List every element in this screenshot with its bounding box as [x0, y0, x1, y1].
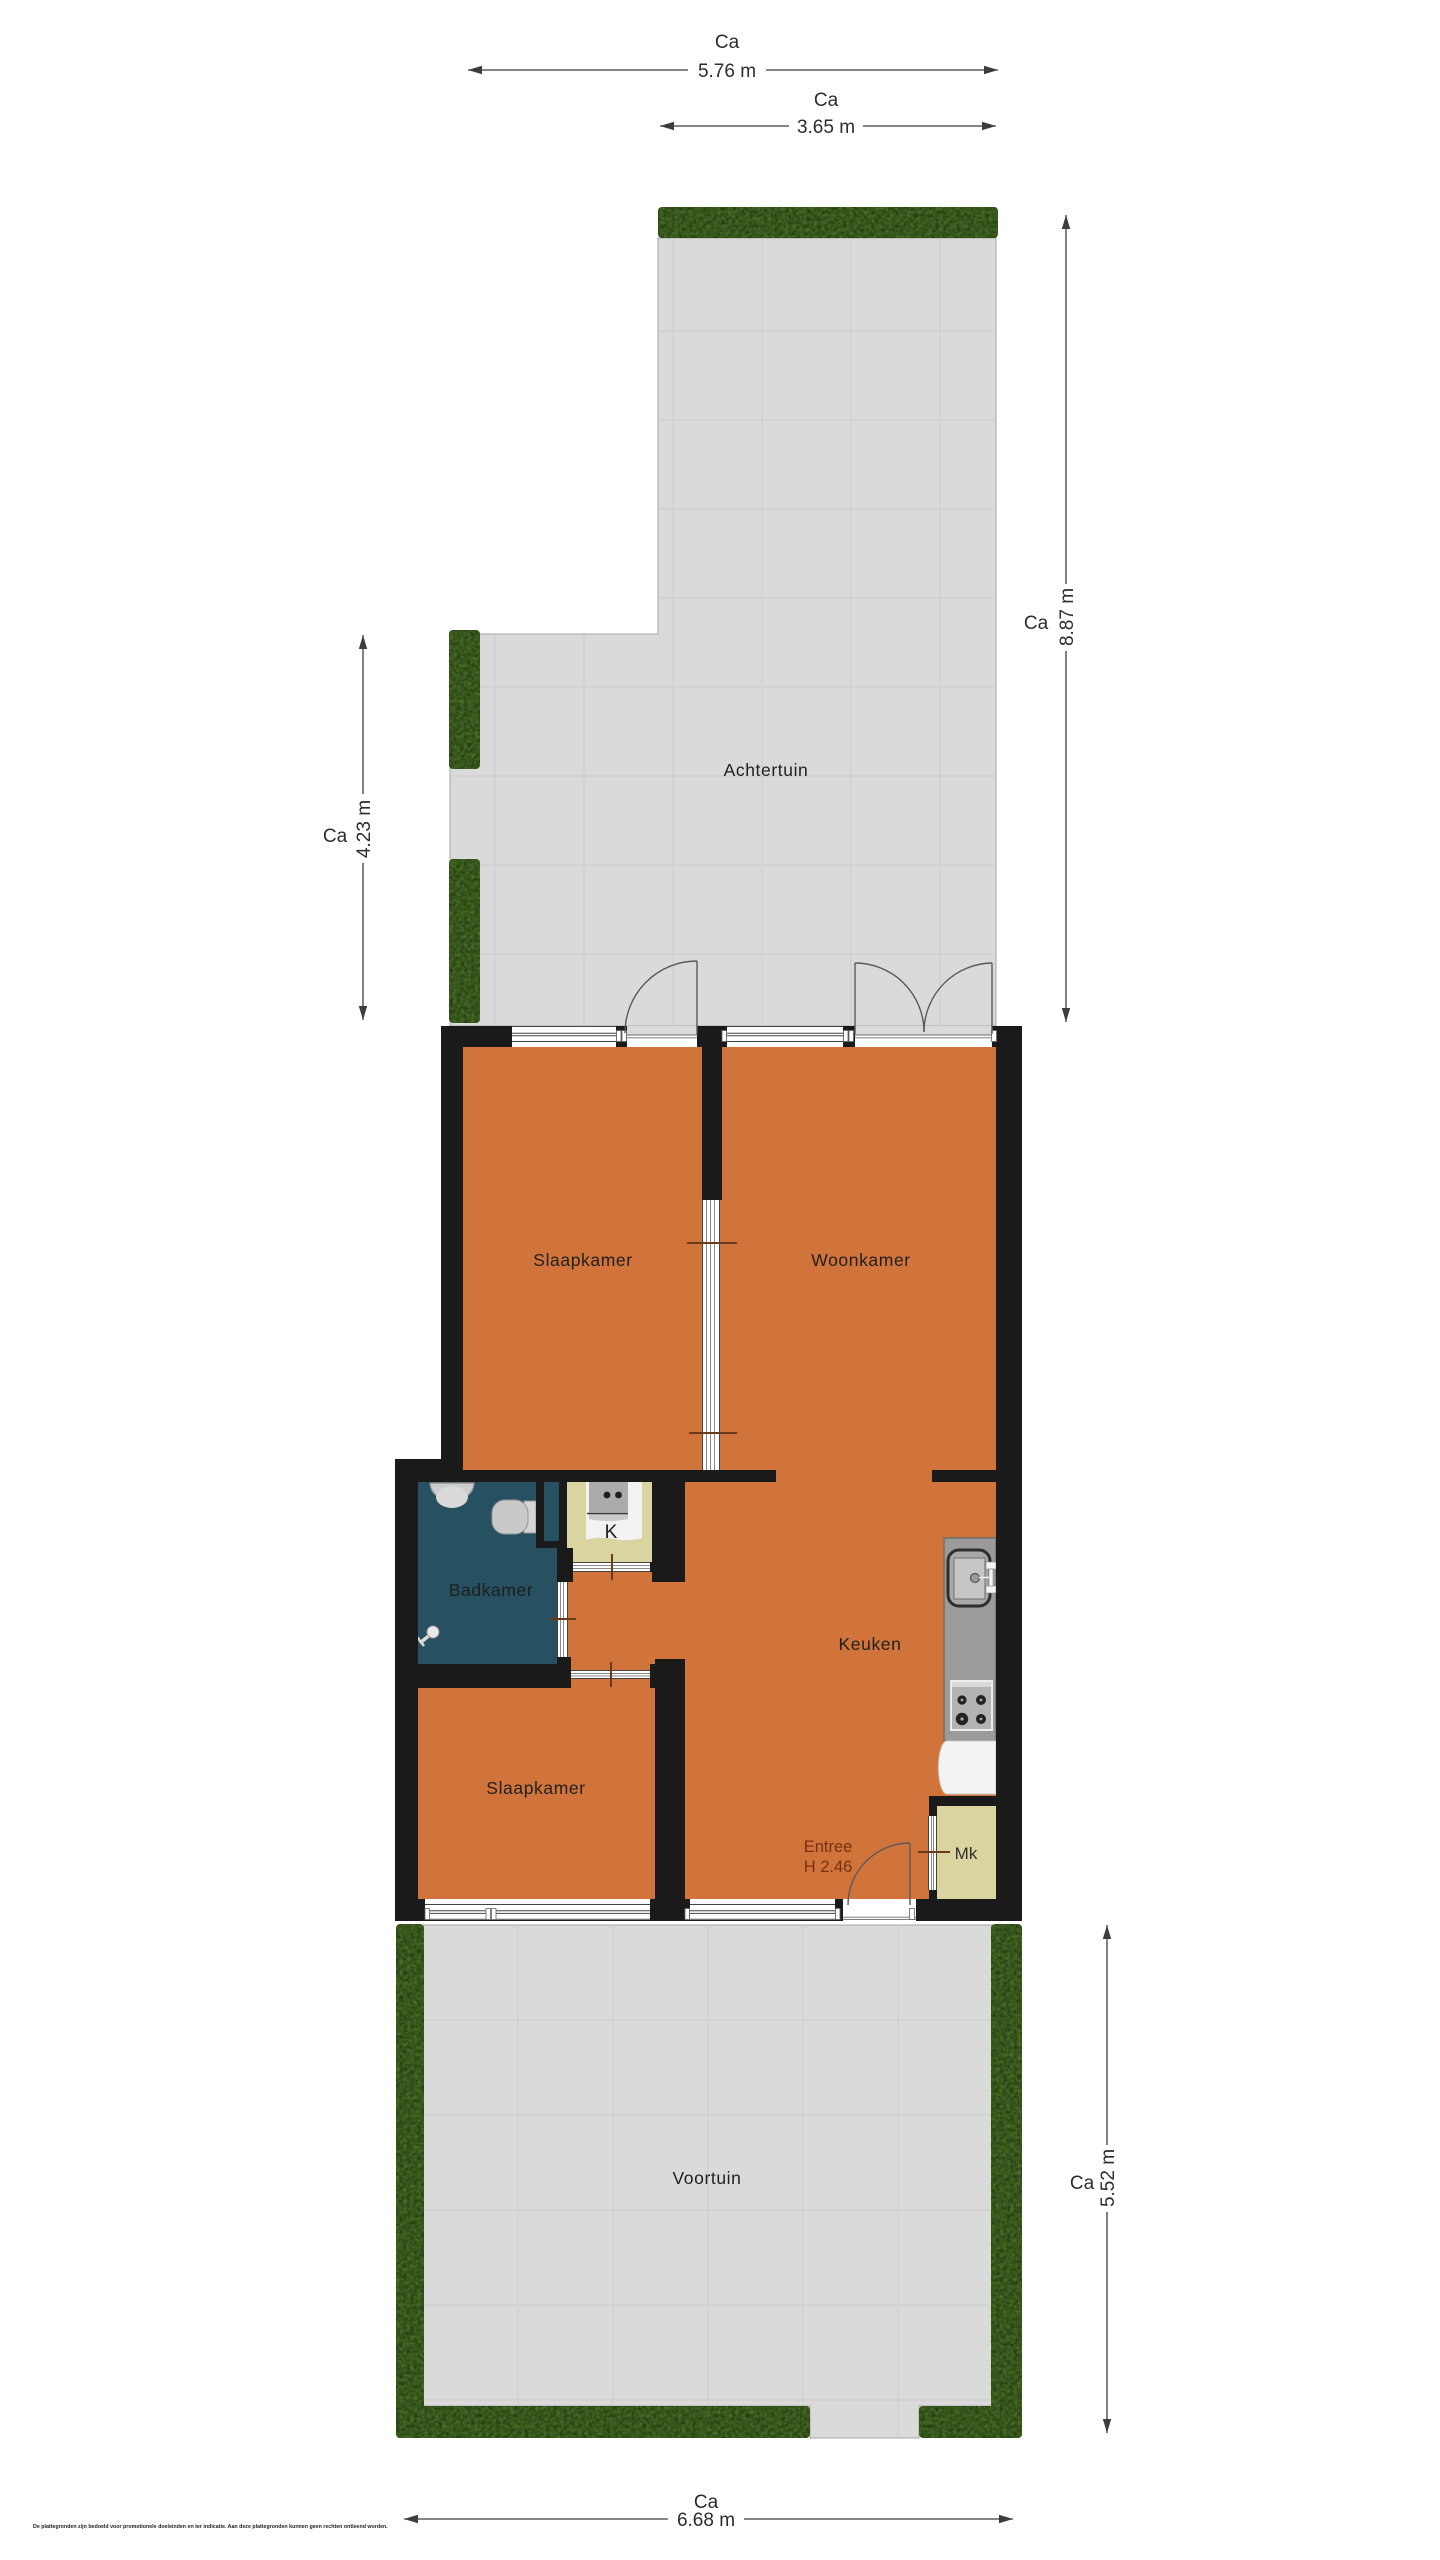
svg-text:Ca: Ca — [1070, 2173, 1095, 2194]
svg-text:3.65 m: 3.65 m — [797, 117, 855, 138]
svg-text:Voortuin: Voortuin — [672, 2168, 741, 2188]
svg-text:Ca: Ca — [1024, 613, 1049, 634]
svg-text:K: K — [605, 1522, 618, 1543]
svg-text:Ca: Ca — [814, 90, 839, 111]
svg-text:Keuken: Keuken — [839, 1634, 902, 1654]
svg-text:Slaapkamer: Slaapkamer — [533, 1250, 632, 1270]
svg-text:Ca: Ca — [715, 32, 740, 53]
svg-text:H 2.46: H 2.46 — [804, 1858, 853, 1876]
svg-text:Mk: Mk — [955, 1844, 978, 1863]
svg-text:Entree: Entree — [804, 1838, 853, 1856]
svg-text:5.76 m: 5.76 m — [698, 61, 756, 82]
svg-text:Ca: Ca — [323, 826, 348, 847]
svg-text:Badkamer: Badkamer — [449, 1580, 534, 1600]
svg-text:5.52 m: 5.52 m — [1098, 2149, 1119, 2207]
svg-text:Achtertuin: Achtertuin — [724, 760, 809, 780]
svg-text:Woonkamer: Woonkamer — [811, 1250, 910, 1270]
svg-text:De plattegronden zijn bedoeld: De plattegronden zijn bedoeld voor promo… — [33, 2524, 388, 2530]
svg-text:6.68 m: 6.68 m — [677, 2510, 735, 2531]
svg-text:4.23 m: 4.23 m — [354, 800, 375, 858]
svg-text:Slaapkamer: Slaapkamer — [486, 1778, 585, 1798]
svg-text:8.87 m: 8.87 m — [1057, 588, 1078, 646]
